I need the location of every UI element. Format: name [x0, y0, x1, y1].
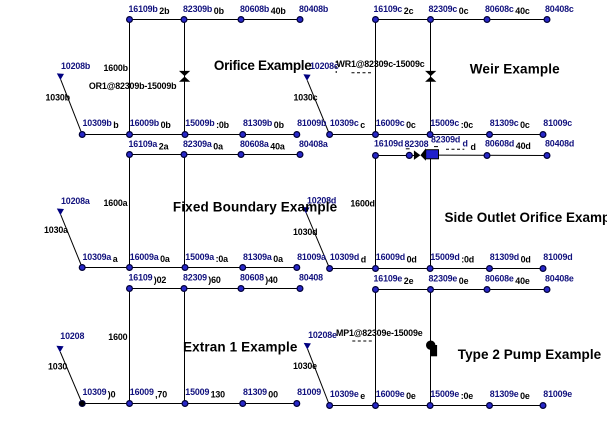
svg-text:2e: 2e [404, 276, 414, 286]
svg-text:1030b: 1030b [46, 93, 71, 103]
svg-text:1600b: 1600b [104, 63, 129, 73]
svg-text:0b: 0b [161, 120, 172, 130]
svg-text:0c: 0c [406, 120, 416, 130]
svg-text:82308: 82308 [405, 139, 429, 149]
svg-text:80408: 80408 [299, 273, 323, 283]
svg-text:16009e: 16009e [376, 389, 405, 399]
svg-text:16109d: 16109d [374, 139, 403, 149]
svg-text:WR1@82309c-15009c: WR1@82309c-15009c [337, 59, 425, 69]
svg-text:)02: )02 [154, 275, 167, 285]
svg-text:Type 2 Pump Example: Type 2 Pump Example [458, 347, 602, 362]
svg-text:16009a: 16009a [130, 252, 159, 262]
svg-text:1030a: 1030a [44, 225, 68, 235]
svg-text:10208: 10208 [60, 331, 84, 341]
svg-text:81309: 81309 [243, 387, 267, 397]
svg-text:1600a: 1600a [104, 198, 128, 208]
svg-text:82309: 82309 [183, 273, 207, 283]
svg-text:40c: 40c [515, 6, 530, 16]
svg-text:1030e: 1030e [293, 361, 317, 371]
svg-text:82309a: 82309a [183, 139, 212, 149]
svg-text:)40: )40 [265, 275, 278, 285]
svg-text:81009c: 81009c [543, 118, 572, 128]
svg-text:82309c: 82309c [429, 4, 458, 14]
svg-text:80408b: 80408b [299, 4, 329, 14]
svg-text:40a: 40a [270, 142, 285, 152]
svg-text:0c: 0c [520, 120, 530, 130]
svg-text:10309a: 10309a [83, 252, 112, 262]
svg-text:81009d: 81009d [543, 252, 572, 262]
svg-text:10208b: 10208b [61, 61, 91, 71]
svg-text:80608a: 80608a [240, 139, 269, 149]
svg-text:80608e: 80608e [485, 274, 514, 284]
svg-text:0e: 0e [459, 276, 469, 286]
svg-text:81309b: 81309b [243, 118, 273, 128]
svg-text::0b: :0b [216, 120, 230, 130]
svg-text:16109a: 16109a [129, 139, 158, 149]
svg-text:80408a: 80408a [299, 139, 328, 149]
svg-text:81009: 81009 [297, 387, 321, 397]
svg-text:1030d: 1030d [293, 227, 317, 237]
svg-text:81309e: 81309e [490, 389, 519, 399]
svg-text:81009b: 81009b [297, 118, 327, 128]
svg-text:40e: 40e [515, 276, 530, 286]
svg-text:82309d: 82309d [431, 134, 460, 144]
svg-text:,70: ,70 [155, 390, 167, 400]
svg-text:a: a [113, 254, 118, 264]
svg-text:80408d: 80408d [545, 139, 574, 149]
svg-text:81009e: 81009e [543, 389, 572, 399]
svg-text:15009c: 15009c [430, 118, 459, 128]
svg-text:2a: 2a [159, 142, 169, 152]
svg-text:80608b: 80608b [240, 4, 270, 14]
svg-text:15009d: 15009d [430, 252, 459, 262]
svg-text:16109: 16109 [129, 273, 153, 283]
svg-text:)60: )60 [208, 275, 221, 285]
svg-text::0d: :0d [461, 254, 474, 264]
svg-text:16009: 16009 [130, 387, 154, 397]
svg-text:81309d: 81309d [490, 252, 519, 262]
svg-text:2c: 2c [404, 6, 414, 16]
svg-text:d: d [463, 139, 468, 149]
svg-text:1030c: 1030c [294, 93, 318, 103]
svg-text:)0: )0 [108, 390, 116, 400]
svg-text:d: d [471, 142, 476, 152]
svg-text::0c: :0c [461, 120, 474, 130]
svg-text:81309c: 81309c [490, 118, 519, 128]
svg-text:0e: 0e [406, 391, 416, 401]
svg-text:15009e: 15009e [430, 389, 459, 399]
svg-text:0c: 0c [459, 6, 469, 16]
svg-text:10208a: 10208a [61, 196, 90, 206]
svg-text:10309e: 10309e [330, 389, 359, 399]
svg-text:10309: 10309 [83, 387, 107, 397]
svg-text:e: e [360, 391, 365, 401]
svg-text:16009b: 16009b [130, 118, 160, 128]
svg-text:0a: 0a [160, 254, 170, 264]
svg-text:16009c: 16009c [376, 118, 405, 128]
svg-text:81309a: 81309a [243, 252, 272, 262]
svg-text:0b: 0b [214, 6, 225, 16]
svg-text:d: d [361, 254, 366, 264]
svg-text:82309e: 82309e [429, 274, 458, 284]
svg-text:40d: 40d [516, 141, 531, 151]
svg-text:40b: 40b [271, 6, 287, 16]
svg-text:80608d: 80608d [485, 139, 514, 149]
svg-text:0a: 0a [213, 142, 223, 152]
svg-text:16009d: 16009d [376, 252, 405, 262]
svg-text:80408e: 80408e [545, 274, 574, 284]
svg-text:Extran 1 Example: Extran 1 Example [183, 340, 298, 355]
svg-text:10208c: 10208c [310, 61, 339, 71]
svg-text:0a: 0a [273, 254, 283, 264]
svg-text:15009a: 15009a [185, 252, 214, 262]
svg-text:10309b: 10309b [83, 118, 113, 128]
svg-text:80608: 80608 [240, 273, 264, 283]
svg-text:Fixed Boundary Example: Fixed Boundary Example [173, 200, 338, 215]
svg-text:81009a: 81009a [297, 252, 326, 262]
svg-text:16109e: 16109e [374, 274, 403, 284]
svg-text:15009b: 15009b [185, 118, 215, 128]
svg-text::0e: :0e [461, 391, 474, 401]
svg-text:00: 00 [268, 390, 278, 400]
svg-text:10309d: 10309d [330, 252, 359, 262]
svg-text:0e: 0e [520, 391, 530, 401]
svg-text:MP1@82309e-15009e: MP1@82309e-15009e [336, 328, 423, 338]
svg-text:82309b: 82309b [183, 4, 213, 14]
svg-text:OR1@82309b-15009b: OR1@82309b-15009b [89, 81, 177, 91]
svg-text:1030: 1030 [48, 361, 67, 371]
svg-text:2b: 2b [159, 6, 170, 16]
svg-text:0d: 0d [407, 254, 417, 264]
svg-text:16109b: 16109b [129, 4, 159, 14]
svg-text::0a: :0a [216, 254, 229, 264]
svg-text:10208e: 10208e [308, 330, 337, 340]
svg-text:Side Outlet Orifice Example: Side Outlet Orifice Example [445, 210, 607, 225]
svg-text:0d: 0d [521, 254, 531, 264]
svg-text:10309c: 10309c [330, 118, 359, 128]
svg-text:c: c [360, 120, 365, 130]
svg-text:Weir Example: Weir Example [470, 62, 560, 77]
svg-text:15009: 15009 [185, 387, 209, 397]
svg-text:16109c: 16109c [374, 4, 403, 14]
svg-text:1600d: 1600d [350, 198, 374, 208]
svg-text:0b: 0b [274, 120, 285, 130]
svg-text:1600: 1600 [108, 332, 127, 342]
svg-text:Orifice Example: Orifice Example [214, 58, 312, 73]
svg-text:b: b [113, 120, 119, 130]
svg-text:130: 130 [211, 390, 226, 400]
svg-text:80608c: 80608c [485, 4, 514, 14]
svg-text:80408c: 80408c [545, 4, 574, 14]
